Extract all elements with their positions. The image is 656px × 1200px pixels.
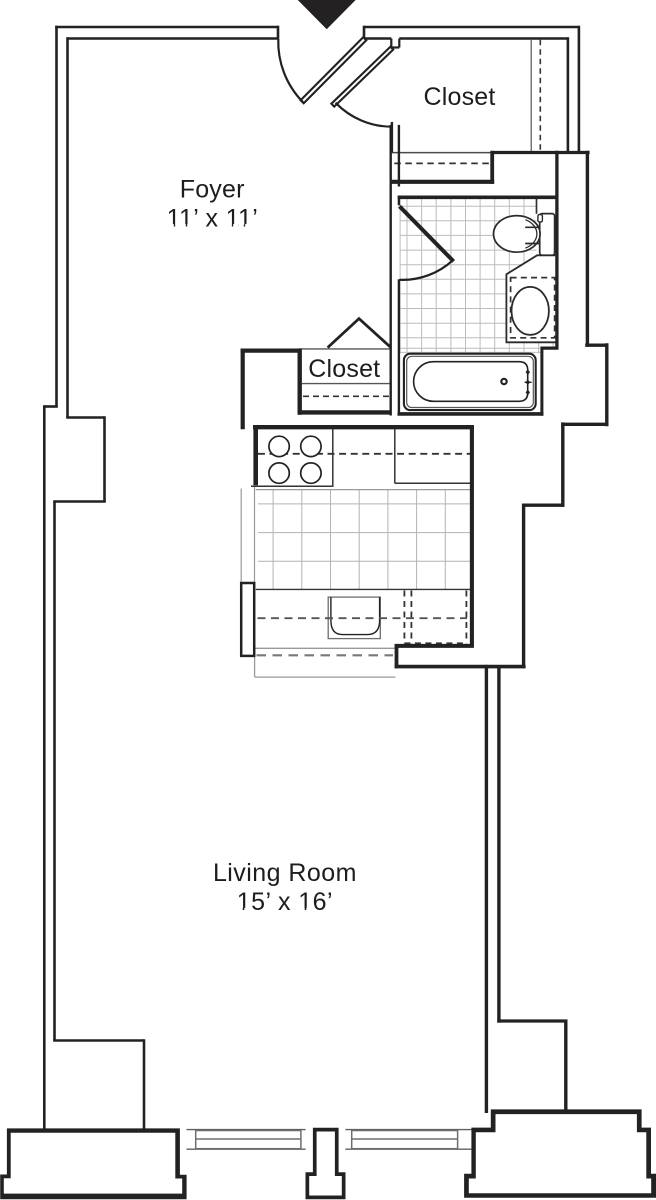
svg-text:Closet: Closet	[423, 83, 495, 111]
svg-text:Living Room: Living Room	[213, 859, 357, 887]
svg-text:Closet: Closet	[308, 355, 380, 383]
svg-text:15’ x 16’: 15’ x 16’	[237, 888, 333, 916]
svg-text:11’ x 11’: 11’ x 11’	[167, 204, 259, 232]
svg-text:Foyer: Foyer	[180, 175, 245, 203]
